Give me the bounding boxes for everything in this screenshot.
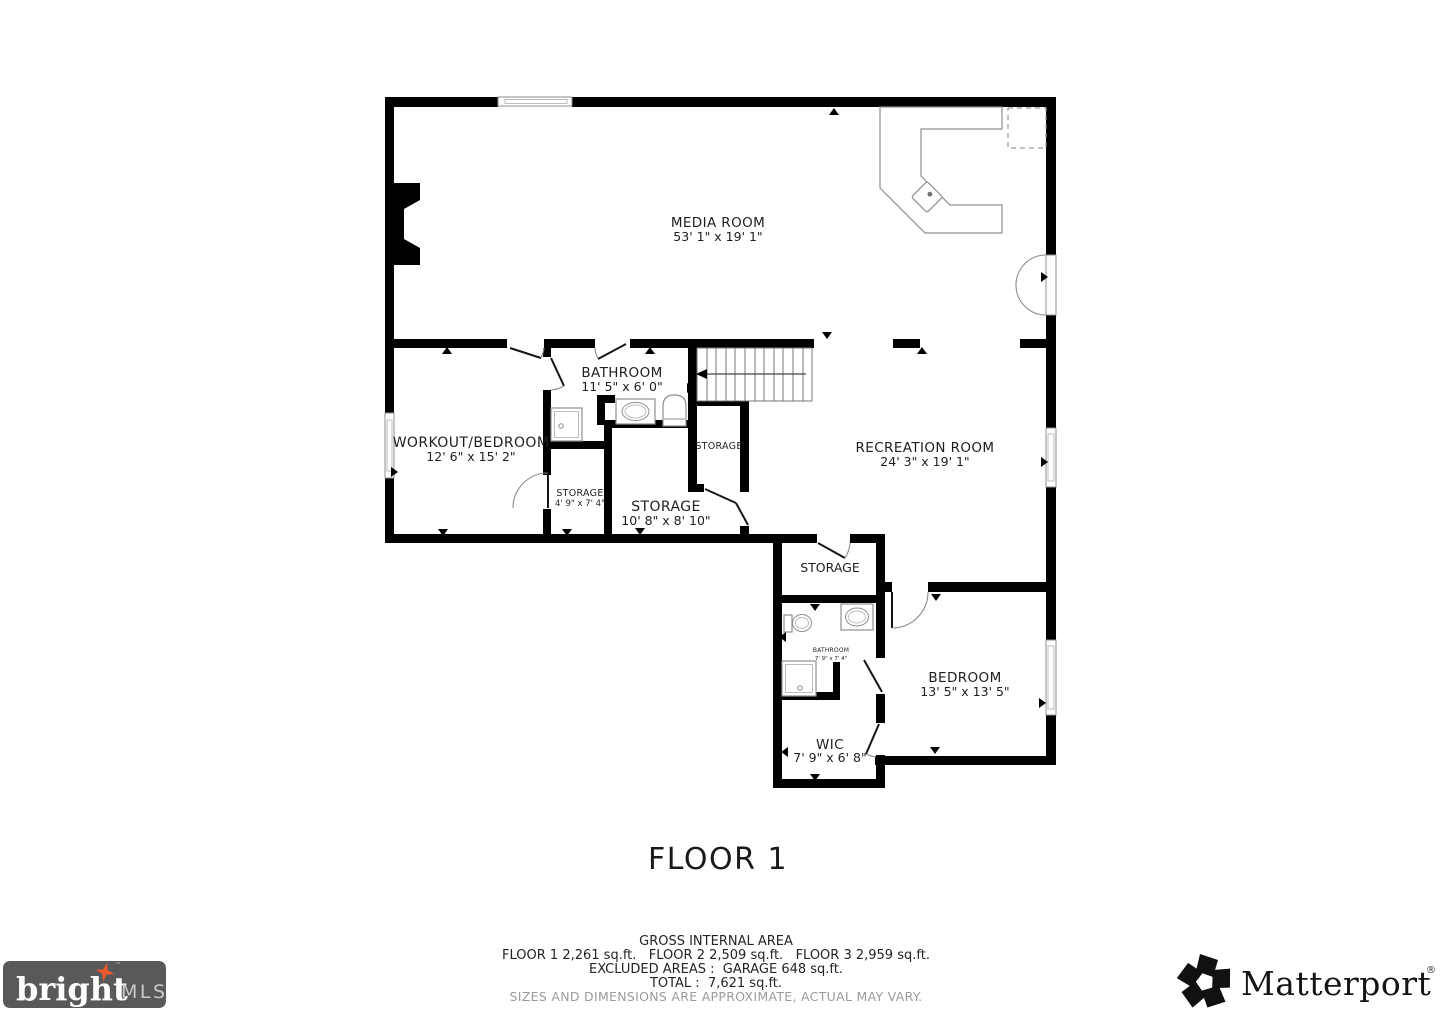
area-summary-excluded: EXCLUDED AREAS : GARAGE 648 sq.ft. <box>589 962 843 977</box>
fireplace <box>392 183 420 265</box>
floor-title: FLOOR 1 <box>648 842 788 877</box>
french-doors-media <box>1016 255 1056 315</box>
window-media-top <box>498 97 572 106</box>
appliance-dashed <box>1008 108 1046 148</box>
door-wic <box>866 724 879 757</box>
door-storage-mid <box>818 543 850 558</box>
area-summary: GROSS INTERNAL AREA FLOOR 1 2,261 sq.ft.… <box>502 934 930 1004</box>
room-label-storage-small: STORAGE <box>556 488 603 499</box>
matterport-logo-reg: ® <box>1426 965 1436 976</box>
area-summary-floors: FLOOR 1 2,261 sq.ft. FLOOR 2 2,509 sq.ft… <box>502 948 930 963</box>
vanity-lower <box>841 604 873 630</box>
room-dims-bathroom-lower: 7' 9" x 7' 4" <box>815 656 847 662</box>
room-dims-recreation: 24' 3" x 19' 1" <box>880 454 969 469</box>
window-bedroom-right <box>1046 640 1056 715</box>
door-bathroom-upper <box>551 358 564 390</box>
area-summary-disclaimer: SIZES AND DIMENSIONS ARE APPROXIMATE, AC… <box>510 989 923 1004</box>
door-storage-small <box>513 473 548 508</box>
room-label-storage-under-stairs: STORAGE <box>695 441 742 452</box>
room-label-bathroom-lower: BATHROOM <box>813 647 849 654</box>
bright-logo-tm: ™ <box>115 961 122 969</box>
room-dims-bathroom-upper: 11' 5" x 6' 0" <box>581 379 662 394</box>
door-media-to-workout <box>510 348 544 358</box>
bright-mls-logo: bright ™ MLS <box>3 961 168 1008</box>
shower-upper <box>551 408 582 441</box>
stairs <box>696 348 812 401</box>
toilet-lower <box>784 615 812 633</box>
window-recreation-right <box>1046 428 1056 487</box>
room-label-storage-mid: STORAGE <box>800 560 860 575</box>
room-dims-media: 53' 1" x 19' 1" <box>673 229 762 244</box>
vanity-upper <box>616 399 655 424</box>
bright-logo-word: bright <box>16 970 128 1008</box>
bright-logo-suffix: MLS <box>121 981 168 1003</box>
room-dims-storage-large: 10' 8" x 8' 10" <box>621 513 710 528</box>
door-media-to-bathroom <box>595 344 626 359</box>
toilet-upper <box>663 395 686 426</box>
room-dims-storage-small: 4' 9" x 7' 4" <box>555 499 605 509</box>
matterport-pinwheel-icon <box>1176 954 1236 1012</box>
room-dims-wic: 7' 9" x 6' 8" <box>793 750 866 765</box>
matterport-logo: Matterport ® <box>1176 954 1436 1012</box>
door-bathroom-lower <box>864 660 882 692</box>
bar-counter <box>880 107 1046 233</box>
area-summary-title: GROSS INTERNAL AREA <box>639 934 793 949</box>
shower-lower <box>782 661 816 696</box>
floorplan-page: MEDIA ROOM 53' 1" x 19' 1" WORKOUT/BEDRO… <box>0 0 1440 1018</box>
matterport-logo-word: Matterport <box>1241 964 1431 1003</box>
floor-plan-drawing: MEDIA ROOM 53' 1" x 19' 1" WORKOUT/BEDRO… <box>0 0 1440 1018</box>
door-bedroom <box>892 592 928 628</box>
room-dims-bedroom: 13' 5" x 13' 5" <box>920 684 1009 699</box>
room-dims-workout: 12' 6" x 15' 2" <box>426 449 515 464</box>
door-storage-under-stairs <box>705 489 748 525</box>
